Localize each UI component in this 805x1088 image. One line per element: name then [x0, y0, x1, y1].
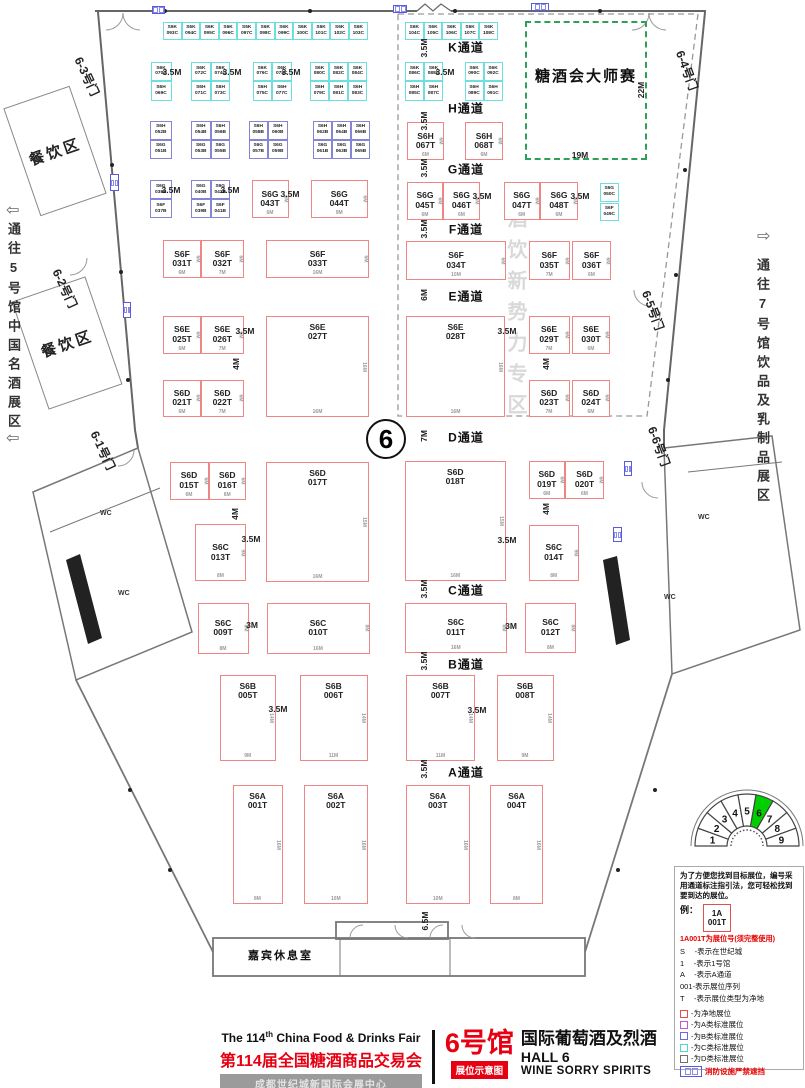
wc-label: WC	[698, 514, 710, 521]
booth-width-dim: 6M	[588, 409, 595, 415]
booth-s6k-104c[interactable]: S6K104C	[405, 22, 424, 40]
booth-s6h-081c[interactable]: S6H081C	[329, 81, 348, 101]
booth-height-dim: 6M	[559, 476, 565, 483]
booth-id: S6B006T	[324, 682, 343, 701]
booth-height-dim: 6M	[534, 197, 540, 204]
dimension-label: 3.5M	[162, 185, 181, 195]
booth-s6h-083c[interactable]: S6H083C	[348, 81, 367, 101]
dimension-label: 3.5M	[269, 704, 288, 714]
legend-key-a: A -表示A通道	[680, 969, 798, 981]
booth-width-dim: 6M	[179, 346, 186, 352]
dimension-label: 3.5M	[498, 535, 517, 545]
booth-id: S6F037B	[155, 203, 166, 215]
legend-swatch-list: -为净地展位-为A类标准展位-为B类标准展位-为C类标准展位-为D类标准展位	[680, 1008, 798, 1064]
booth-s6f-034t[interactable]: S6F034T10M6M	[406, 241, 506, 280]
booth-s6e-025t[interactable]: S6E025T6M6M	[163, 316, 201, 354]
booth-width-dim: 10M	[331, 896, 341, 902]
legend-key-t: T -表示展位类型为净地	[680, 993, 798, 1005]
booth-height-dim: 16M	[462, 840, 468, 850]
booth-s6h-068t[interactable]: S6H068T6M6M	[465, 122, 503, 160]
booth-s6k-106c[interactable]: S6K106C	[442, 22, 461, 40]
booth-s6k-094c[interactable]: S6K094C	[182, 22, 201, 40]
booth-s6k-102c[interactable]: S6K102C	[330, 22, 349, 40]
booth-s6a-002t[interactable]: S6A002T10M16M	[304, 785, 368, 904]
minimap-hall-number: 4	[732, 809, 738, 820]
minimap-hall-number: 7	[767, 815, 773, 826]
booth-id: S6G065B	[355, 143, 366, 155]
booth-id: S6F035T	[540, 251, 559, 270]
booth-s6d-016t[interactable]: S6D016T6M6M	[209, 462, 247, 501]
booth-s6f-032t[interactable]: S6F032T7M6M	[201, 240, 244, 278]
fire-hydrant-marker	[123, 302, 131, 318]
master-competition-label: 糖酒会大师赛	[527, 65, 645, 86]
legend-key-1: 1 -表示1号馆	[680, 958, 798, 970]
booth-height-dim: 6M	[500, 257, 506, 264]
booth-id: S6G051B	[155, 143, 166, 155]
booth-s6g-055b[interactable]: S6G055B	[211, 140, 231, 159]
booth-id: S6F033T	[308, 250, 327, 269]
booth-height-dim: 6M	[563, 395, 569, 402]
booth-id: S6K099C	[278, 25, 289, 37]
booth-id: S6K094C	[185, 25, 196, 37]
plan-badge: 展位示意图	[451, 1061, 509, 1079]
booth-width-dim: 16M	[313, 270, 323, 276]
example-booth-line2: 001T	[708, 918, 726, 927]
booth-width-dim: 9M	[244, 753, 251, 759]
dimension-label: 7M	[419, 430, 429, 442]
booth-id: S6K101C	[315, 25, 326, 37]
booth-id: S6C010T	[308, 619, 327, 638]
booth-width-dim: 7M	[219, 270, 226, 276]
booth-s6h-069c[interactable]: S6H069C	[151, 81, 172, 101]
booth-id: S6G050C	[604, 186, 615, 198]
bottom-walls	[76, 674, 672, 976]
booth-s6d-024t[interactable]: S6D024T6M6M	[572, 380, 610, 417]
booth-s6e-028t[interactable]: S6E028T16M16M	[406, 316, 505, 417]
fair-title-cn: 第114届全国糖酒商品交易会	[220, 1047, 422, 1071]
minimap-hall-number: 9	[779, 835, 785, 846]
aisle-label-k: K通道	[448, 39, 484, 56]
booth-s6c-012t[interactable]: S6C012T8M8M	[525, 603, 576, 653]
booth-s6d-017t[interactable]: S6D017T16M15M	[266, 462, 369, 582]
booth-s6c-013t[interactable]: S6C013T8M9M	[195, 524, 246, 581]
booth-s6h-073c[interactable]: S6H073C	[211, 81, 231, 101]
dimension-label: 6M	[419, 289, 429, 301]
booth-s6k-090c[interactable]: S6K090C	[465, 62, 484, 82]
booth-s6f-035t[interactable]: S6F035T7M6M	[529, 241, 571, 280]
booth-s6k-095c[interactable]: S6K095C	[200, 22, 219, 40]
legend-example-label: 例：	[680, 904, 698, 916]
minimap-hall-number: 6	[756, 809, 762, 820]
booth-s6e-027t[interactable]: S6E027T16M16M	[266, 316, 369, 417]
booth-height-dim: 16M	[275, 840, 281, 850]
legend-key-001: 001-表示展位序列	[680, 981, 798, 993]
booth-s6k-072c[interactable]: S6K072C	[191, 62, 211, 82]
booth-width-dim: 7M	[546, 346, 553, 352]
booth-s6g-051b[interactable]: S6G051B	[150, 140, 172, 159]
booth-id: S6H066B	[355, 124, 366, 136]
dimension-label: 3.5M	[419, 652, 429, 671]
booth-s6g-053b[interactable]: S6G053B	[191, 140, 211, 159]
booth-s6g-057b[interactable]: S6G057B	[249, 140, 269, 159]
booth-id: S6B005T	[238, 682, 257, 701]
booth-s6h-071c[interactable]: S6H071C	[191, 81, 211, 101]
booth-id: S6G046T	[452, 191, 471, 210]
booth-s6a-004t[interactable]: S6A004T8M16M	[490, 785, 543, 904]
booth-s6k-076c[interactable]: S6K076C	[253, 62, 273, 82]
legend-swatch-row: -为净地展位	[680, 1008, 798, 1019]
booth-s6c-011t[interactable]: S6C011T16M8M	[405, 603, 507, 653]
booth-s6a-003t[interactable]: S6A003T10M16M	[406, 785, 470, 904]
booth-id: S6F049C	[604, 206, 615, 218]
booth-width-dim: 6M	[588, 346, 595, 352]
booth-s6k-098c[interactable]: S6K098C	[256, 22, 275, 40]
booth-id: S6A002T	[326, 792, 345, 811]
dimension-label: 3.5M	[498, 326, 517, 336]
booth-id: S6E030T	[581, 325, 600, 344]
legend-swatch-label: -为A类标准展位	[691, 1019, 744, 1030]
stair-block-right	[603, 556, 630, 645]
dimension-label: 3.5M	[419, 220, 429, 239]
hall-name-cn: 6号馆	[445, 1030, 514, 1057]
booth-id: S6D016T	[218, 471, 237, 490]
booth-s6g-063b[interactable]: S6G063B	[332, 140, 351, 159]
booth-id: S6E027T	[308, 323, 327, 342]
booth-height-dim: 14M	[268, 713, 274, 723]
fair-title-en-post: China Food & Drinks Fair	[273, 1031, 420, 1045]
booth-s6h-079c[interactable]: S6H079C	[310, 81, 329, 101]
booth-s6k-086c[interactable]: S6K086C	[405, 62, 424, 82]
booth-width-dim: 7M	[219, 346, 226, 352]
booth-id: S6G059B	[272, 143, 283, 155]
booth-s6k-093c[interactable]: S6K093C	[163, 22, 182, 40]
dimension-label: 3.5M	[436, 67, 455, 77]
booth-width-dim: 6M	[581, 491, 588, 497]
booth-width-dim: 7M	[546, 409, 553, 415]
booth-id: S6F032T	[213, 250, 232, 269]
dimension-label: 3.5M	[571, 191, 590, 201]
booth-id: S6E029T	[539, 325, 558, 344]
dimension-label: 4M	[230, 508, 240, 520]
booth-s6k-092c[interactable]: S6K092C	[484, 62, 503, 82]
booth-s6h-064b[interactable]: S6H064B	[332, 121, 351, 140]
booth-id: S6K096C	[222, 25, 233, 37]
booth-s6h-052b[interactable]: S6H052B	[150, 121, 172, 140]
booth-id: S6G044T	[330, 190, 349, 209]
booth-width-dim: 8M	[220, 646, 227, 652]
booth-id: S6H056B	[215, 124, 226, 136]
booth-s6k-100c[interactable]: S6K100C	[293, 22, 312, 40]
minimap-hall-number: 1	[710, 835, 716, 846]
booth-id: S6H075C	[257, 85, 268, 97]
booth-width-dim: 7M	[219, 409, 226, 415]
legend-example-note: 1A001T为展位号(须完整使用)	[680, 934, 798, 944]
booth-width-dim: 8M	[513, 896, 520, 902]
booth-id: S6D023T	[539, 389, 558, 408]
hall-category-en: WINE SORRY SPIRITS	[521, 1065, 657, 1077]
dimension-label: 3.5M	[223, 67, 242, 77]
booth-id: S6H058B	[253, 124, 264, 136]
booth-id: S6G045T	[415, 191, 434, 210]
dimension-label: 4M	[541, 503, 551, 515]
booth-id: S6H054B	[195, 124, 206, 136]
booth-s6f-049c[interactable]: S6F049C	[600, 203, 619, 222]
booth-id: S6D024T	[581, 389, 600, 408]
booth-id: S6H073C	[215, 85, 226, 97]
booth-id: S6H060B	[272, 124, 283, 136]
booth-width-dim: 11M	[329, 753, 338, 759]
booth-height-dim: 6M	[563, 331, 569, 338]
booth-s6h-091c[interactable]: S6H091C	[484, 81, 503, 101]
booth-s6k-101c[interactable]: S6K101C	[312, 22, 331, 40]
booth-width-dim: 9M	[522, 753, 529, 759]
booth-s6g-047t[interactable]: S6G047T6M6M	[504, 182, 541, 220]
booth-id: S6G047T	[512, 191, 531, 210]
booth-s6g-043t[interactable]: S6G043T6M6M	[252, 180, 289, 218]
booth-s6d-018t[interactable]: S6D018T16M15M	[405, 461, 506, 581]
minimap-hall-number: 2	[714, 824, 720, 835]
fair-title-en: The 114th China Food & Drinks Fair	[220, 1030, 422, 1045]
hall-category-cn: 国际葡萄酒及烈酒	[521, 1030, 657, 1049]
booth-height-dim: 16M	[360, 840, 366, 850]
booth-id: S6H068T	[474, 132, 493, 151]
booth-s6k-096c[interactable]: S6K096C	[219, 22, 238, 40]
booth-height-dim: 6M	[195, 331, 201, 338]
booth-s6f-037b[interactable]: S6F037B	[150, 199, 172, 218]
booth-id: S6K095C	[204, 25, 215, 37]
booth-s6k-099c[interactable]: S6K099C	[275, 22, 294, 40]
booth-height-dim: 6M	[437, 197, 443, 204]
booth-height-dim: 16M	[535, 840, 541, 850]
booth-height-dim: 6M	[363, 256, 369, 263]
booth-width-dim: 16M	[451, 645, 461, 651]
booth-id: S6H083C	[352, 85, 363, 97]
booth-s6h-056b[interactable]: S6H056B	[211, 121, 231, 140]
booth-height-dim: 8M	[363, 625, 369, 632]
booth-s6b-006t[interactable]: S6B006T11M14M	[300, 675, 368, 761]
booth-width-dim: 6M	[481, 152, 488, 158]
booth-s6g-059b[interactable]: S6G059B	[268, 140, 288, 159]
booth-s6e-029t[interactable]: S6E029T7M6M	[529, 316, 570, 354]
booth-s6d-022t[interactable]: S6D022T7M6M	[201, 380, 244, 417]
booth-width-dim: 16M	[313, 409, 323, 415]
booth-s6d-019t[interactable]: S6D019T6M6M	[529, 461, 566, 499]
booth-height-dim: 6M	[497, 138, 503, 145]
minimap-hall-number: 5	[744, 807, 750, 818]
booth-s6h-062b[interactable]: S6H062B	[313, 121, 332, 140]
booth-id: S6H062B	[317, 124, 328, 136]
booth-id: S6G053B	[195, 143, 206, 155]
dimension-label: 3.5M	[419, 39, 429, 58]
booth-width-dim: 6M	[543, 491, 550, 497]
legend-swatch-color	[680, 1044, 688, 1052]
booth-id: S6D020T	[575, 470, 594, 489]
booth-id: S6D019T	[537, 470, 556, 489]
booth-width-dim: 8M	[547, 645, 554, 651]
booth-width-dim: 16M	[313, 574, 323, 580]
booth-s6e-030t[interactable]: S6E030T6M6M	[572, 316, 610, 354]
legend-swatch-row: -为D类标准展位	[680, 1053, 798, 1064]
booth-s6h-066b[interactable]: S6H066B	[351, 121, 370, 140]
booth-s6d-021t[interactable]: S6D021T6M6M	[163, 380, 201, 417]
aisle-label-h: H通道	[448, 100, 484, 117]
booth-width-dim: 6M	[179, 270, 186, 276]
booth-s6k-103c[interactable]: S6K103C	[349, 22, 368, 40]
booth-id: S6B007T	[431, 682, 450, 701]
booth-id: S6G048T	[549, 191, 568, 210]
dimension-label: 3.5M	[281, 189, 300, 199]
booth-s6g-061b[interactable]: S6G061B	[313, 140, 332, 159]
booth-id: S6K100C	[297, 25, 308, 37]
dimension-label: 19M	[572, 150, 589, 160]
booth-s6h-054b[interactable]: S6H054B	[191, 121, 211, 140]
booth-id: S6K107C	[464, 25, 475, 37]
booth-s6f-036t[interactable]: S6F036T6M6M	[572, 241, 611, 280]
dimension-label: 3.5M	[236, 326, 255, 336]
booth-s6d-015t[interactable]: S6D015T6M6M	[170, 462, 209, 501]
booth-id: S6K092C	[487, 66, 498, 78]
booth-id: S6H071C	[195, 85, 206, 97]
aisle-label-e: E通道	[448, 288, 483, 305]
booth-width-dim: 16M	[451, 409, 461, 415]
booth-width-dim: 11M	[436, 753, 445, 759]
booth-id: S6E026T	[213, 325, 232, 344]
booth-s6k-105c[interactable]: S6K105C	[424, 22, 443, 40]
booth-height-dim: 6M	[195, 256, 201, 263]
booth-s6g-065b[interactable]: S6G065B	[351, 140, 370, 159]
booth-width-dim: 8M	[217, 573, 224, 579]
booth-width-dim: 8M	[254, 896, 261, 902]
booth-id: S6H069C	[155, 85, 166, 97]
dimension-label: 3.5M	[221, 185, 240, 195]
booth-s6d-020t[interactable]: S6D020T6M6M	[565, 461, 604, 499]
arrow-left-icon: ⇦	[6, 200, 19, 220]
booth-width-dim: 6M	[179, 409, 186, 415]
booth-height-dim: 6M	[240, 477, 246, 484]
booth-s6b-005t[interactable]: S6B005T9M14M	[220, 675, 277, 761]
booth-s6k-097c[interactable]: S6K097C	[237, 22, 256, 40]
booth-s6k-084c[interactable]: S6K084C	[348, 62, 367, 82]
example-booth-line1: 1A	[712, 909, 722, 918]
booth-s6b-007t[interactable]: S6B007T11M14M	[406, 675, 475, 761]
booth-height-dim: 6M	[604, 395, 610, 402]
booth-s6g-050c[interactable]: S6G050C	[600, 183, 619, 202]
dimension-label: 6.5M	[420, 912, 430, 931]
booth-id: S6F036T	[582, 251, 601, 270]
arrow-left-icon-2: ⇦	[6, 428, 19, 448]
booth-s6c-010t[interactable]: S6C010T16M8M	[267, 603, 370, 654]
stair-block-left	[66, 554, 102, 644]
fire-hydrant-marker	[624, 461, 632, 476]
fire-hydrant-marker	[531, 3, 549, 11]
legend-example-booth: 1A 001T	[703, 904, 731, 932]
booth-height-dim: 16M	[361, 362, 367, 372]
booth-s6k-080c[interactable]: S6K080C	[310, 62, 329, 82]
booth-width-dim: 6M	[556, 212, 563, 218]
booth-s6h-089c[interactable]: S6H089C	[465, 81, 484, 101]
fire-hydrant-icon	[680, 1066, 702, 1077]
booth-id: S6K106C	[446, 25, 457, 37]
legend-swatch-row: -为B类标准展位	[680, 1031, 798, 1042]
booth-s6f-033t[interactable]: S6F033T16M6M	[266, 240, 369, 278]
booth-id: S6K098C	[260, 25, 271, 37]
booth-s6h-060b[interactable]: S6H060B	[268, 121, 288, 140]
booth-id: S6B008T	[515, 682, 534, 701]
booth-s6d-023t[interactable]: S6D023T7M6M	[529, 380, 570, 417]
booth-id: S6K104C	[409, 25, 420, 37]
booth-s6h-087c[interactable]: S6H087C	[424, 81, 443, 101]
booth-s6c-009t[interactable]: S6C009T8M8M	[198, 603, 249, 654]
booth-width-dim: 16M	[313, 646, 323, 652]
legend-key-s: S -表示在世纪城	[680, 946, 798, 958]
booth-width-dim: 10M	[433, 896, 443, 902]
booth-height-dim: 6M	[438, 138, 444, 145]
dimension-label: 3.5M	[419, 760, 429, 779]
booth-id: S6D022T	[213, 389, 232, 408]
venue-name: 成都世纪城新国际会展中心	[220, 1074, 422, 1088]
booth-s6f-041b[interactable]: S6F041B	[211, 199, 231, 218]
legend-swatch-color	[680, 1032, 688, 1040]
fair-title-en-pre: The 114	[221, 1031, 265, 1045]
dimension-label: 3M	[505, 621, 517, 631]
guest-lounge-label: 嘉宾休息室	[248, 947, 313, 963]
booth-id: S6K102C	[334, 25, 345, 37]
booth-s6k-108c[interactable]: S6K108C	[479, 22, 498, 40]
aisle-label-g: G通道	[448, 161, 484, 178]
hall-number-circle: 6	[366, 419, 406, 459]
legend-swatch-color	[680, 1010, 688, 1018]
legend-panel: 为了方便您找到目标展位，编号采用通道标注指引法，您可轻松找到要到达的展位。 例：…	[674, 866, 804, 1070]
booth-height-dim: 15M	[361, 517, 367, 527]
dimension-label: 22M	[636, 82, 646, 99]
booth-s6h-077c[interactable]: S6H077C	[272, 81, 292, 101]
title-block: The 114th China Food & Drinks Fair 第114届…	[220, 1030, 657, 1088]
booth-s6h-075c[interactable]: S6H075C	[253, 81, 273, 101]
booth-id: S6H079C	[314, 85, 325, 97]
booth-s6k-107c[interactable]: S6K107C	[461, 22, 480, 40]
booth-id: S6E025T	[172, 325, 191, 344]
booth-s6k-082c[interactable]: S6K082C	[329, 62, 348, 82]
booth-id: S6K084C	[352, 66, 363, 78]
booth-id: S6H091C	[487, 85, 498, 97]
booth-id: S6K080C	[314, 66, 325, 78]
aisle-label-c: C通道	[448, 582, 484, 599]
booth-id: S6D017T	[308, 469, 327, 488]
booth-s6h-058b[interactable]: S6H058B	[249, 121, 269, 140]
dimension-label: 3.5M	[419, 112, 429, 131]
fire-hydrant-marker	[393, 5, 407, 13]
fire-safety-note: 消防设施严禁遮挡	[705, 1067, 765, 1077]
booth-s6h-085c[interactable]: S6H085C	[405, 81, 424, 101]
booth-s6f-031t[interactable]: S6F031T6M6M	[163, 240, 201, 278]
booth-id: S6K072C	[195, 66, 206, 78]
booth-height-dim: 6M	[604, 331, 610, 338]
booth-id: S6G040B	[195, 184, 206, 196]
legend-swatch-color	[680, 1021, 688, 1029]
booth-id: S6K082C	[333, 66, 344, 78]
booth-id: S6C011T	[446, 618, 465, 637]
booth-s6g-044t[interactable]: S6G044T9M6M	[311, 180, 368, 218]
booth-s6b-008t[interactable]: S6B008T9M14M	[497, 675, 554, 761]
booth-s6g-040b[interactable]: S6G040B	[191, 180, 211, 199]
booth-s6f-039b[interactable]: S6F039B	[191, 199, 211, 218]
booth-id: S6K086C	[409, 66, 420, 78]
booth-s6a-001t[interactable]: S6A001T8M16M	[233, 785, 283, 904]
booth-height-dim: 6M	[564, 257, 570, 264]
booth-s6c-014t[interactable]: S6C014T8M9M	[529, 525, 580, 582]
booth-id: S6H081C	[333, 85, 344, 97]
booth-s6g-045t[interactable]: S6G045T6M6M	[407, 182, 443, 220]
